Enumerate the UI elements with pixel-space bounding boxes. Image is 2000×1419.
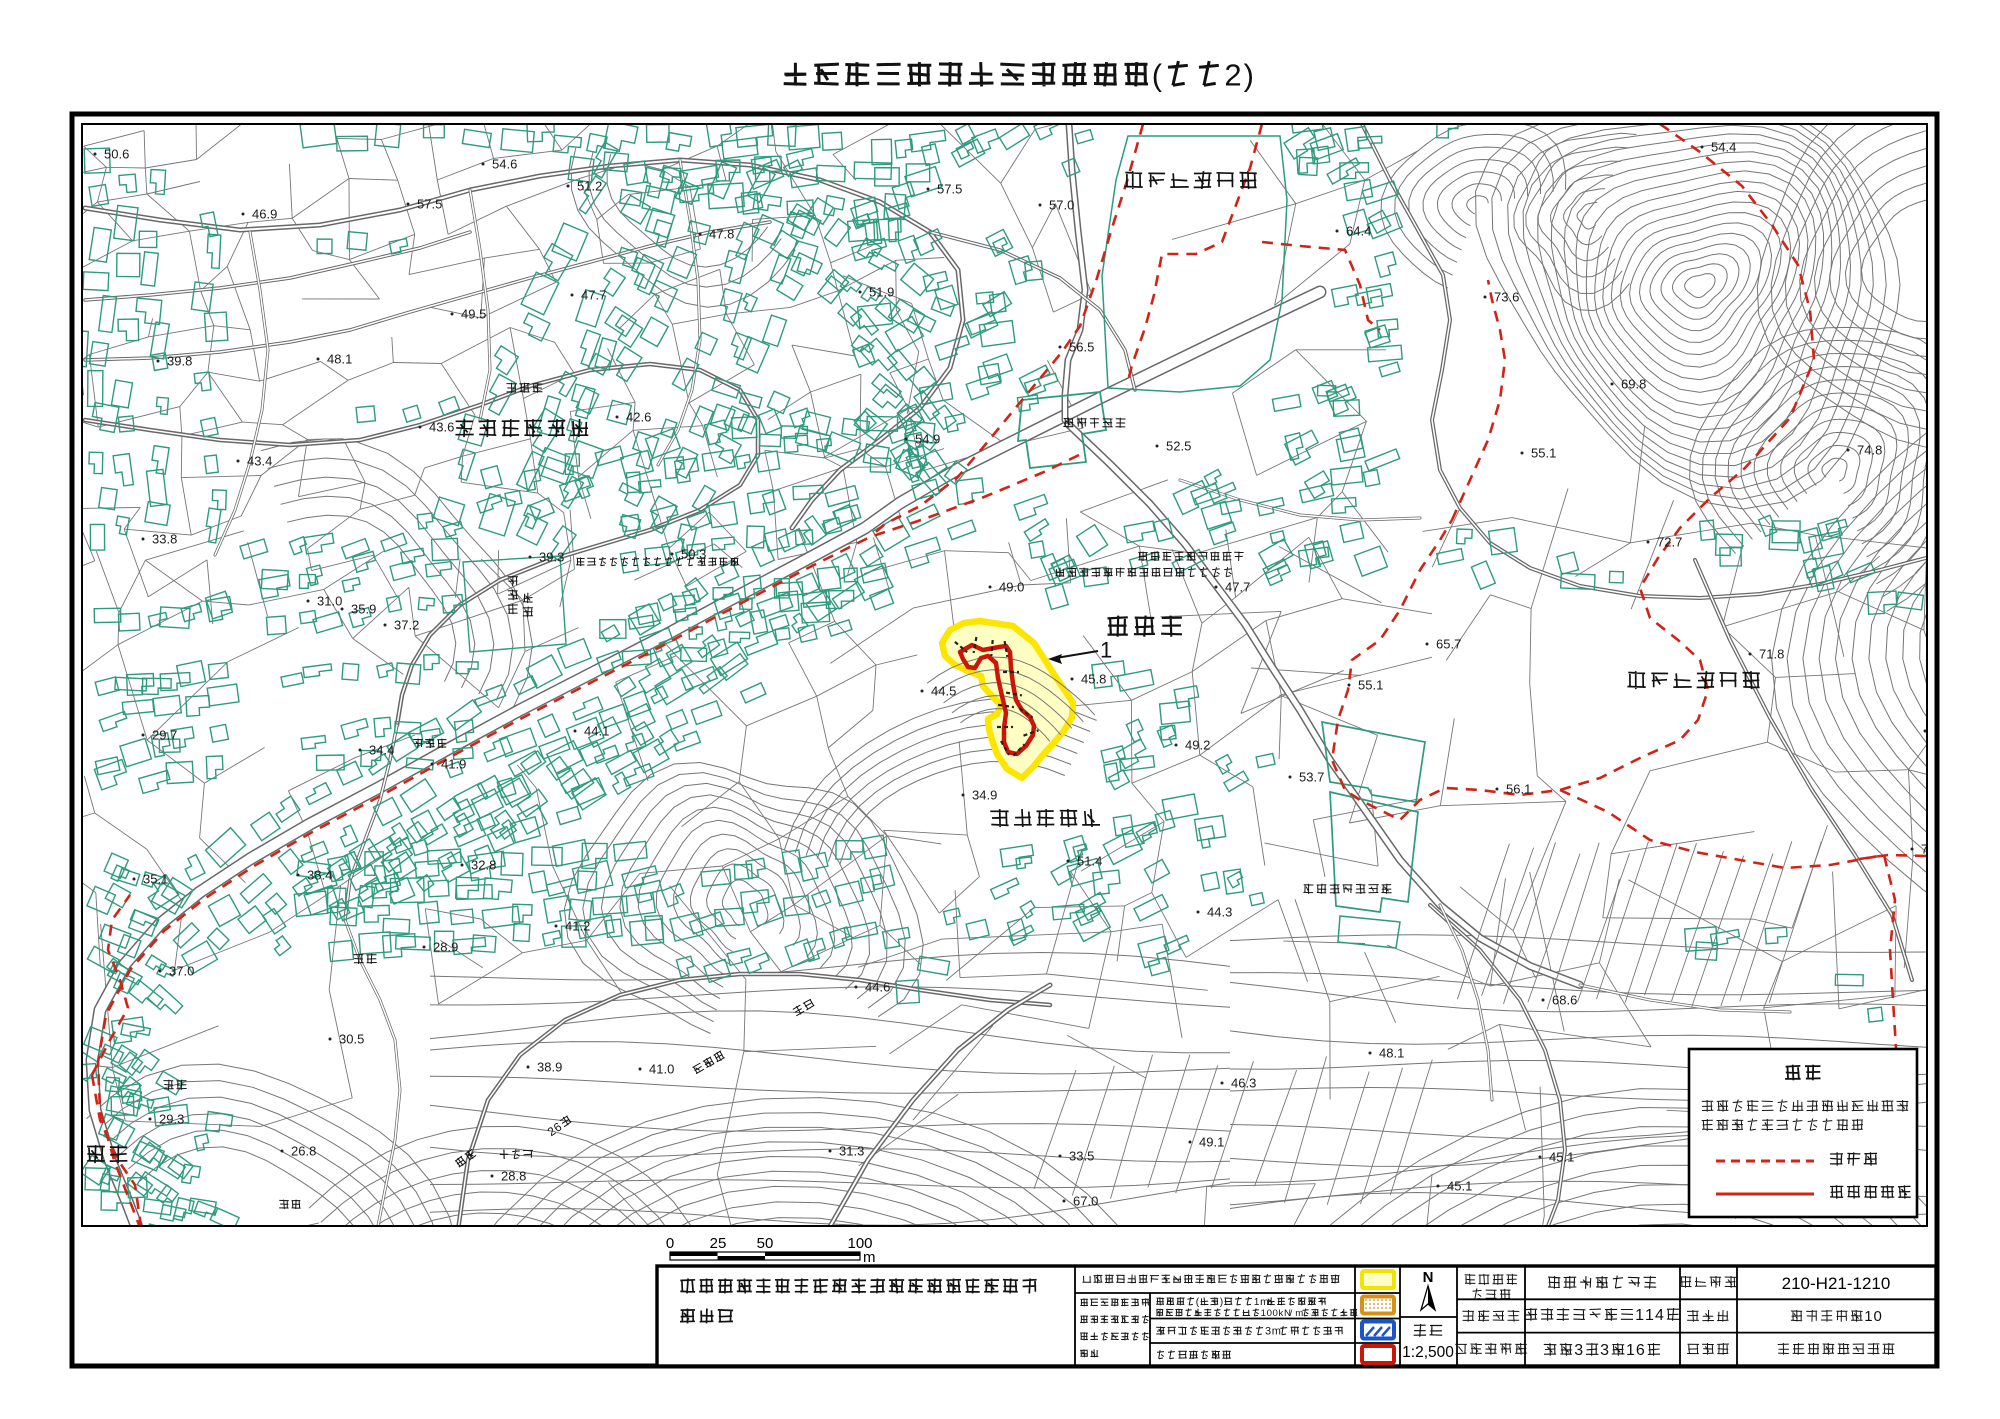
svg-text:45.8: 45.8 <box>1081 672 1106 687</box>
svg-text:38.9: 38.9 <box>537 1060 562 1075</box>
svg-text:29.7: 29.7 <box>152 728 177 743</box>
svg-text:49.1: 49.1 <box>1199 1135 1224 1150</box>
svg-text:4: 4 <box>1655 1307 1664 1324</box>
svg-text:34.4: 34.4 <box>369 743 394 758</box>
svg-text:32.8: 32.8 <box>471 858 496 873</box>
svg-text:57.5: 57.5 <box>937 182 962 197</box>
svg-text:1: 1 <box>1645 1307 1654 1324</box>
svg-text:44.5: 44.5 <box>931 684 956 699</box>
svg-text:34.9: 34.9 <box>972 788 997 803</box>
svg-text:41.2: 41.2 <box>565 919 590 934</box>
svg-text:): ) <box>1220 1297 1223 1308</box>
svg-text:45.1: 45.1 <box>1447 1179 1472 1194</box>
svg-text:28.8: 28.8 <box>501 1169 526 1184</box>
svg-text:46.9: 46.9 <box>252 207 277 222</box>
svg-text:65.7: 65.7 <box>1436 637 1461 652</box>
svg-text:74.8: 74.8 <box>1857 443 1882 458</box>
svg-text:N: N <box>1423 1269 1434 1286</box>
svg-text:50.6: 50.6 <box>104 147 129 162</box>
svg-text:44.3: 44.3 <box>1207 905 1232 920</box>
svg-text:48.1: 48.1 <box>327 352 352 367</box>
svg-text:48.1: 48.1 <box>1379 1046 1404 1061</box>
svg-text:73.6: 73.6 <box>1494 290 1519 305</box>
svg-text:55.1: 55.1 <box>1531 446 1556 461</box>
svg-text:29.3: 29.3 <box>159 1112 184 1127</box>
svg-text:m: m <box>1260 1297 1269 1308</box>
svg-text:0: 0 <box>1273 1308 1278 1319</box>
svg-text:49.5: 49.5 <box>461 307 486 322</box>
svg-text:49.2: 49.2 <box>1185 738 1210 753</box>
svg-text:1: 1 <box>1626 1342 1635 1359</box>
svg-text:m: m <box>1272 1326 1281 1338</box>
svg-text:41.9: 41.9 <box>441 757 466 772</box>
svg-text:k: k <box>1279 1308 1284 1319</box>
svg-text:33.5: 33.5 <box>1069 1149 1094 1164</box>
svg-text:67.0: 67.0 <box>1073 1194 1098 1209</box>
svg-text:54.9: 54.9 <box>915 432 940 447</box>
svg-text:1: 1 <box>1864 1308 1872 1325</box>
svg-text:0: 0 <box>1267 1308 1272 1319</box>
svg-text:0: 0 <box>666 1235 674 1252</box>
svg-text:57.0: 57.0 <box>1049 198 1074 213</box>
svg-text:51.4: 51.4 <box>1077 854 1102 869</box>
svg-text:6: 6 <box>1636 1342 1645 1359</box>
svg-text:72.7: 72.7 <box>1657 535 1682 550</box>
svg-text:1:2,500: 1:2,500 <box>1402 1344 1454 1361</box>
svg-text:41.0: 41.0 <box>649 1062 674 1077</box>
svg-text:1: 1 <box>1254 1297 1260 1308</box>
svg-text:45.1: 45.1 <box>1549 1150 1574 1165</box>
svg-text:210-H21-1210: 210-H21-1210 <box>1782 1274 1891 1293</box>
svg-text:(: ( <box>1152 57 1163 92</box>
svg-text:56.5: 56.5 <box>1069 340 1094 355</box>
svg-text:1: 1 <box>1100 637 1112 662</box>
svg-text:54.6: 54.6 <box>492 157 517 172</box>
svg-text:39.3: 39.3 <box>539 550 564 565</box>
svg-text:26.8: 26.8 <box>291 1144 316 1159</box>
svg-text:71.8: 71.8 <box>1759 647 1784 662</box>
svg-text:51.2: 51.2 <box>577 179 602 194</box>
svg-text:44.6: 44.6 <box>865 980 890 995</box>
svg-text:56.1: 56.1 <box>1506 782 1531 797</box>
svg-text:39.8: 39.8 <box>167 354 192 369</box>
svg-text:68.6: 68.6 <box>1552 993 1577 1008</box>
svg-text:35.1: 35.1 <box>143 872 168 887</box>
svg-text:47.8: 47.8 <box>709 227 734 242</box>
svg-text:m: m <box>863 1249 876 1266</box>
svg-text:1: 1 <box>1635 1307 1644 1324</box>
svg-text:/: / <box>1290 1308 1293 1319</box>
svg-text:46.3: 46.3 <box>1231 1076 1256 1091</box>
svg-text:28.9: 28.9 <box>433 940 458 955</box>
svg-text:43.4: 43.4 <box>247 454 272 469</box>
svg-text:37.2: 37.2 <box>394 618 419 633</box>
svg-text:42.6: 42.6 <box>626 410 651 425</box>
svg-text:(: ( <box>1196 1297 1200 1308</box>
svg-text:57.5: 57.5 <box>417 197 442 212</box>
svg-text:3: 3 <box>1600 1342 1609 1359</box>
svg-text:30.5: 30.5 <box>339 1032 364 1047</box>
svg-text:35.9: 35.9 <box>351 602 376 617</box>
svg-text:37.0: 37.0 <box>169 964 194 979</box>
svg-text:64.4: 64.4 <box>1346 224 1371 239</box>
svg-text:69.8: 69.8 <box>1621 377 1646 392</box>
svg-text:47.7: 47.7 <box>1225 580 1250 595</box>
svg-text:1: 1 <box>1261 1308 1266 1319</box>
svg-text:52.5: 52.5 <box>1166 439 1191 454</box>
svg-text:31.3: 31.3 <box>839 1144 864 1159</box>
svg-text:2: 2 <box>1224 57 1241 92</box>
svg-text:51.9: 51.9 <box>869 285 894 300</box>
svg-text:54.4: 54.4 <box>1711 140 1736 155</box>
svg-text:3: 3 <box>1265 1326 1271 1338</box>
svg-text:47.7: 47.7 <box>581 288 606 303</box>
svg-text:25: 25 <box>710 1235 727 1252</box>
svg-text:44.1: 44.1 <box>584 724 609 739</box>
svg-text:43.6: 43.6 <box>429 420 454 435</box>
svg-text:55.1: 55.1 <box>1358 678 1383 693</box>
svg-text:31.0: 31.0 <box>317 594 342 609</box>
svg-text:m: m <box>1295 1308 1303 1319</box>
svg-text:33.8: 33.8 <box>152 532 177 547</box>
svg-text:49.0: 49.0 <box>999 580 1024 595</box>
svg-text:38.4: 38.4 <box>307 868 332 883</box>
svg-text:53.7: 53.7 <box>1299 770 1324 785</box>
svg-text:50: 50 <box>757 1235 774 1252</box>
svg-text:50.3: 50.3 <box>681 547 706 562</box>
svg-text:0: 0 <box>1874 1308 1882 1325</box>
svg-text:3: 3 <box>1574 1342 1583 1359</box>
svg-text:): ) <box>1244 57 1254 92</box>
